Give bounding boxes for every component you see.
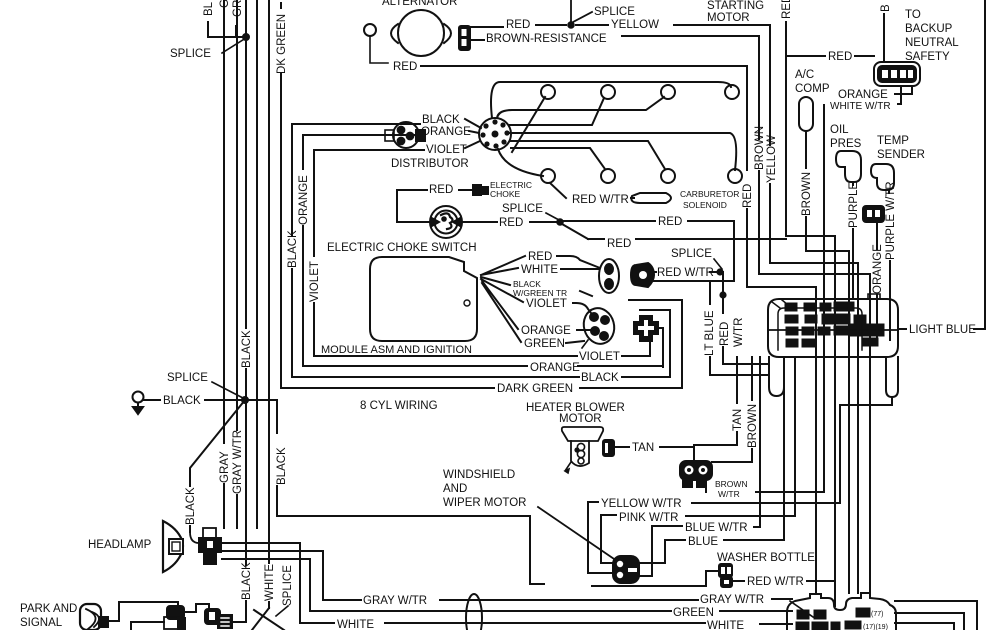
svg-text:A/C: A/C	[795, 69, 814, 81]
svg-text:CHOKE: CHOKE	[490, 189, 521, 199]
svg-text:VIOLET: VIOLET	[426, 144, 467, 156]
svg-text:PRES: PRES	[830, 138, 862, 150]
svg-text:RED: RED	[719, 322, 731, 346]
svg-text:W/GREEN TR: W/GREEN TR	[513, 288, 567, 298]
svg-text:TO: TO	[905, 9, 921, 21]
svg-text:DISTRIBUTOR: DISTRIBUTOR	[391, 158, 469, 170]
svg-text:RED W/TR: RED W/TR	[657, 267, 714, 279]
svg-text:YELLOW: YELLOW	[611, 19, 659, 31]
svg-text:BROWN: BROWN	[754, 126, 766, 170]
svg-text:WIPER MOTOR: WIPER MOTOR	[443, 497, 526, 509]
svg-text:BROWN: BROWN	[747, 404, 759, 448]
svg-text:(17)(19): (17)(19)	[863, 624, 888, 630]
svg-text:RED W/TR: RED W/TR	[572, 194, 629, 206]
svg-text:WHITE W/TR: WHITE W/TR	[830, 101, 891, 112]
svg-text:BLACK: BLACK	[185, 487, 197, 525]
svg-text:BROWN-RESISTANCE: BROWN-RESISTANCE	[486, 33, 607, 45]
svg-text:BLACK: BLACK	[276, 447, 288, 485]
svg-text:GRAY: GRAY	[219, 451, 231, 483]
svg-text:RED: RED	[658, 216, 682, 228]
svg-text:BL: BL	[203, 1, 215, 16]
svg-text:W/TR: W/TR	[733, 318, 745, 347]
svg-text:MOTOR: MOTOR	[559, 413, 602, 425]
svg-text:RED: RED	[393, 61, 417, 73]
svg-text:ORANGE: ORANGE	[838, 89, 888, 101]
svg-text:GRAY W/TR: GRAY W/TR	[700, 594, 764, 606]
svg-text:SENDER: SENDER	[877, 149, 925, 161]
svg-text:DK GREEN: DK GREEN	[276, 14, 288, 74]
svg-text:OIL: OIL	[830, 124, 849, 136]
svg-text:WASHER BOTTLE: WASHER BOTTLE	[717, 552, 815, 564]
svg-text:PURPLE: PURPLE	[848, 182, 860, 228]
svg-text:GRAY W/TR: GRAY W/TR	[232, 430, 244, 494]
svg-text:RED: RED	[742, 184, 754, 208]
svg-text:VIOLET: VIOLET	[579, 351, 620, 363]
svg-text:ORANGE: ORANGE	[421, 126, 471, 138]
svg-text:BLACK: BLACK	[422, 114, 460, 126]
svg-text:YELLOW: YELLOW	[766, 135, 778, 183]
svg-text:STARTING: STARTING	[707, 0, 764, 12]
svg-text:ORANGE: ORANGE	[298, 175, 310, 225]
svg-text:BROWN: BROWN	[801, 172, 813, 216]
svg-text:LT BLUE: LT BLUE	[704, 310, 716, 356]
svg-text:GRAY W/TR: GRAY W/TR	[363, 595, 427, 607]
svg-text:GREEN: GREEN	[524, 338, 565, 350]
svg-text:PARK AND: PARK AND	[20, 603, 77, 615]
svg-text:SPLICE: SPLICE	[502, 203, 543, 215]
svg-text:BLACK: BLACK	[581, 372, 619, 384]
svg-text:ORANGE: ORANGE	[872, 244, 884, 294]
svg-text:GREEN: GREEN	[673, 607, 714, 619]
svg-text:VIOLET: VIOLET	[309, 261, 321, 302]
svg-text:SPLICE: SPLICE	[282, 565, 294, 606]
svg-text:SPLICE: SPLICE	[170, 48, 211, 60]
svg-text:RED: RED	[499, 217, 523, 229]
svg-text:BROWN: BROWN	[715, 479, 748, 489]
svg-text:SPLICE: SPLICE	[594, 6, 635, 18]
svg-text:RED: RED	[607, 238, 631, 250]
svg-text:SOLENOID: SOLENOID	[683, 200, 727, 210]
svg-text:RED: RED	[781, 0, 793, 19]
svg-text:BLACK: BLACK	[241, 562, 253, 600]
svg-text:VIOLET: VIOLET	[526, 298, 567, 310]
svg-text:ORANGE: ORANGE	[530, 362, 580, 374]
svg-text:ELECTRIC CHOKE SWITCH: ELECTRIC CHOKE SWITCH	[327, 242, 477, 254]
svg-text:SPLICE: SPLICE	[671, 248, 712, 260]
svg-text:CARBURETOR: CARBURETOR	[680, 189, 739, 199]
svg-text:DARK GREEN: DARK GREEN	[497, 383, 573, 395]
svg-text:WINDSHIELD: WINDSHIELD	[443, 469, 515, 481]
svg-text:WHITE: WHITE	[264, 564, 276, 601]
svg-text:GR: GR	[232, 0, 244, 17]
svg-text:W/TR: W/TR	[718, 489, 740, 499]
svg-text:NEUTRAL: NEUTRAL	[905, 37, 959, 49]
svg-text:SPLICE: SPLICE	[167, 372, 208, 384]
svg-text:ORANGE: ORANGE	[521, 325, 571, 337]
svg-text:G: G	[219, 0, 231, 8]
svg-text:BACKUP: BACKUP	[905, 23, 953, 35]
svg-text:LIGHT BLUE: LIGHT BLUE	[909, 324, 976, 336]
svg-text:TEMP: TEMP	[877, 135, 909, 147]
svg-text:TAN: TAN	[632, 442, 654, 454]
svg-text:RED: RED	[506, 19, 530, 31]
svg-text:TAN: TAN	[732, 409, 744, 431]
svg-text:RED: RED	[828, 51, 852, 63]
svg-text:BLACK: BLACK	[163, 395, 201, 407]
svg-text:PURPLE W/TR: PURPLE W/TR	[885, 181, 897, 260]
svg-text:RED: RED	[528, 251, 552, 263]
svg-text:B: B	[880, 4, 892, 12]
svg-text:PINK W/TR: PINK W/TR	[619, 512, 678, 524]
svg-text:RED W/TR: RED W/TR	[747, 576, 804, 588]
svg-text:WHITE: WHITE	[707, 620, 744, 630]
svg-text:WHITE: WHITE	[337, 619, 374, 630]
svg-text:RED: RED	[429, 184, 453, 196]
svg-text:SIGNAL: SIGNAL	[20, 617, 63, 629]
svg-text:HEADLAMP: HEADLAMP	[88, 539, 152, 551]
svg-text:BLUE W/TR: BLUE W/TR	[685, 522, 748, 534]
svg-text:MOTOR: MOTOR	[707, 12, 750, 24]
svg-text:BLACK: BLACK	[287, 230, 299, 268]
svg-text:WHITE: WHITE	[521, 264, 558, 276]
svg-text:YELLOW W/TR: YELLOW W/TR	[601, 498, 682, 510]
svg-text:(77): (77)	[871, 611, 883, 618]
svg-text:COMP: COMP	[795, 83, 830, 95]
svg-text:8 CYL WIRING: 8 CYL WIRING	[360, 400, 438, 412]
svg-text:BLACK: BLACK	[241, 330, 253, 368]
svg-text:MODULE ASM AND IGNITION: MODULE ASM AND IGNITION	[321, 344, 472, 356]
svg-text:BLUE: BLUE	[688, 536, 718, 548]
svg-text:ALTERNATOR: ALTERNATOR	[382, 0, 457, 8]
svg-text:AND: AND	[443, 483, 467, 495]
